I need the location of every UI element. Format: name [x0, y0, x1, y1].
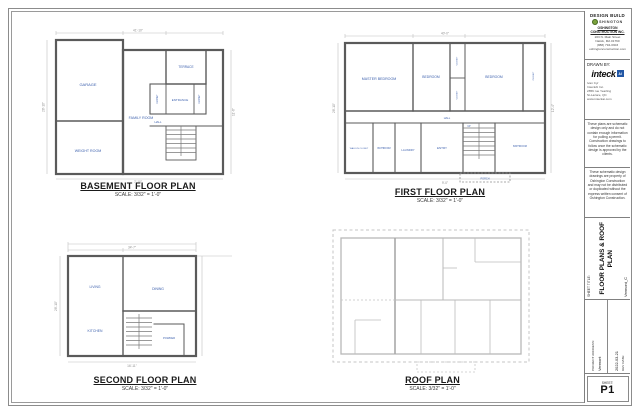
- project-rev-box: PROJECT ADDRESS: Vermont 2022-03-21 REV …: [585, 300, 630, 374]
- room-label-bedroom: BEDROOM: [422, 75, 440, 79]
- room-label-closet: CLOSET: [457, 56, 459, 65]
- company-box: DESIGN BUILD SHINGTON OSHINGTON CONSTRUC…: [585, 11, 630, 60]
- plan-scale-text: SCALE: 3/32" = 1'-0": [38, 192, 238, 198]
- second-walls: [68, 256, 196, 356]
- second-dimension-lines: 34'-7" 28'-10" 16'-11": [54, 242, 232, 368]
- plan-title-text: FIRST FLOOR PLAN: [325, 187, 555, 197]
- dimension-label: 28'-10": [54, 301, 58, 311]
- room-label-laundry: LAUNDRY: [401, 148, 414, 152]
- rev-date-section: 2022-03-21 REV DATE:: [607, 300, 630, 373]
- rev-date-value: 2022-03-21: [614, 302, 619, 371]
- roof-plan: [325, 220, 540, 375]
- drawing-sheet: 41'-10" 28'-10" 11'-6" 7'-10": [0, 0, 640, 414]
- first-floor-plan: 40'-0" 28'-10" 12'-4" 9'-0": [325, 26, 555, 186]
- room-label-closet: CLOSET: [457, 90, 459, 99]
- plan-scale-text: SCALE: 3/32" = 1'-0": [325, 386, 540, 392]
- room-label-hall: HALL: [444, 116, 451, 120]
- room-label-entry: ENTRY: [437, 146, 447, 150]
- room-label-bathroom: BATHROOM: [377, 147, 390, 150]
- dimension-label: 16'-11": [127, 364, 137, 368]
- plan-title-text: BASEMENT FLOOR PLAN: [38, 181, 238, 191]
- inteck-badge-icon: AI: [617, 70, 624, 77]
- drawn-by-box: DRAWN BY: inteck AI Ivan Cyr InteckAI In…: [585, 60, 630, 120]
- plan-scale-text: SCALE: 3/32" = 1'-0": [325, 198, 555, 204]
- second-plan-drawing: 34'-7" 28'-10" 16'-11": [50, 226, 240, 374]
- first-walls: [345, 43, 545, 173]
- company-logo-text: SHINGTON: [599, 20, 623, 24]
- sheet-number: P1: [600, 385, 614, 397]
- disclaimer-text: These schematic design drawings are prop…: [587, 170, 628, 200]
- second-floor-plan: 34'-7" 28'-10" 16'-11": [50, 226, 240, 374]
- sheet-subtitle: Vermont_C: [623, 220, 628, 297]
- plan-title-text: ROOF PLAN: [325, 375, 540, 385]
- inteck-logo: inteck AI: [587, 70, 628, 79]
- company-logo-row: SHINGTON: [587, 19, 628, 25]
- sheet-title-box: SHEET TITLE: FLOOR PLANS & ROOF PLAN Ver…: [585, 218, 630, 300]
- room-label-weight: WEIGHT ROOM: [75, 149, 102, 153]
- room-label-entrance: ENTRANCE: [172, 98, 189, 102]
- disclaimer-box-2: These schematic design drawings are prop…: [585, 168, 630, 218]
- roof-plan-drawing: [325, 220, 540, 375]
- dimension-label: 9'-0": [442, 181, 448, 185]
- company-gear-icon: [592, 19, 598, 25]
- sheet-title-label: SHEET TITLE:: [587, 220, 591, 297]
- room-label-dining: DINING: [152, 287, 164, 291]
- room-label-family: FAMILY ROOM: [129, 116, 154, 120]
- sheet-title: FLOOR PLANS & ROOF PLAN: [591, 220, 623, 297]
- dimension-label: 41'-10": [133, 29, 143, 33]
- room-label-closet: CLOSET: [157, 94, 159, 104]
- basement-room-labels: GARAGE FAMILY ROOM WEIGHT ROOM TERRACE E…: [75, 65, 201, 153]
- room-label-master-bedroom: MASTER BEDROOM: [362, 77, 397, 81]
- room-label-bedroom: BEDROOM: [485, 75, 503, 79]
- company-name: OSHINGTON CONSTRUCTION INC.: [587, 26, 628, 35]
- basement-floor-plan: 41'-10" 28'-10" 11'-6" 7'-10": [38, 26, 238, 184]
- sheet-title-line: FLOOR PLANS & ROOF: [599, 222, 607, 294]
- first-plan-drawing: 40'-0" 28'-10" 12'-4" 9'-0": [325, 26, 555, 186]
- room-label-walkin-closet: WALK-IN CLOSET: [350, 147, 369, 150]
- basement-plan-title: BASEMENT FLOOR PLAN SCALE: 3/32" = 1'-0": [38, 181, 238, 198]
- disclaimer-text: These plans are schematic design only an…: [587, 122, 628, 157]
- first-plan-title: FIRST FLOOR PLAN SCALE: 3/32" = 1'-0": [325, 187, 555, 204]
- roof-plan-title: ROOF PLAN SCALE: 3/32" = 1'-0": [325, 375, 540, 392]
- dimension-label: 12'-4": [551, 104, 555, 112]
- room-label-closet: CLOSET: [199, 94, 201, 104]
- roof-lines: [333, 230, 529, 372]
- room-label-terrace: TERRACE: [178, 65, 193, 69]
- room-label-powder: POWDER: [163, 336, 175, 340]
- disclaimer-box-1: These plans are schematic design only an…: [585, 120, 630, 168]
- project-address-section: PROJECT ADDRESS: Vermont: [585, 300, 607, 373]
- room-label-garage: GARAGE: [79, 82, 96, 87]
- sheet-title-line: PLAN: [607, 250, 615, 267]
- second-stairs: [126, 314, 152, 349]
- dimension-label: 28'-10": [42, 102, 46, 112]
- dimension-label: 28'-10": [332, 103, 336, 113]
- drafter-contact-line: www.inteckai.com: [587, 97, 628, 101]
- first-room-labels: MASTER BEDROOM BEDROOM BEDROOM CLOSET CL…: [350, 56, 535, 181]
- company-website-line: oshingtonconstruction.com: [587, 47, 628, 51]
- room-label-up: UP: [467, 126, 471, 128]
- second-plan-title: SECOND FLOOR PLAN SCALE: 3/32" = 1'-0": [50, 375, 240, 392]
- title-block: DESIGN BUILD SHINGTON OSHINGTON CONSTRUC…: [584, 11, 630, 403]
- company-brand-line: DESIGN BUILD: [587, 13, 628, 18]
- room-label-porch: PORCH: [480, 178, 489, 181]
- sheet-number-box: SHEET: P1: [585, 374, 630, 403]
- room-label-kitchen: KITCHEN: [88, 329, 103, 333]
- first-dimension-lines: 40'-0" 28'-10" 12'-4" 9'-0": [332, 32, 555, 185]
- basement-plan-drawing: 41'-10" 28'-10" 11'-6" 7'-10": [38, 26, 238, 184]
- project-address-value: Vermont: [597, 302, 602, 371]
- room-label-closet: CLOSET: [533, 71, 535, 80]
- room-label-bathroom: BATHROOM: [513, 145, 527, 148]
- first-stairs: [463, 123, 495, 159]
- inteck-logo-text: inteck: [591, 70, 615, 79]
- dimension-label: 40'-0": [441, 32, 449, 36]
- basement-stairs: [166, 126, 196, 156]
- basement-walls: [56, 40, 223, 174]
- dimension-label: 11'-6": [232, 108, 236, 116]
- drawn-by-label: DRAWN BY:: [587, 62, 628, 67]
- plan-scale-text: SCALE: 3/32" = 1'-0": [50, 386, 240, 392]
- sheet-number-inner-box: SHEET: P1: [587, 376, 629, 402]
- plan-title-text: SECOND FLOOR PLAN: [50, 375, 240, 385]
- room-label-hall: HALL: [155, 120, 162, 124]
- room-label-living: LIVING: [89, 285, 100, 289]
- dimension-label: 34'-7": [128, 246, 136, 250]
- project-address-label: PROJECT ADDRESS:: [591, 302, 595, 371]
- rev-date-label: REV DATE:: [621, 302, 625, 371]
